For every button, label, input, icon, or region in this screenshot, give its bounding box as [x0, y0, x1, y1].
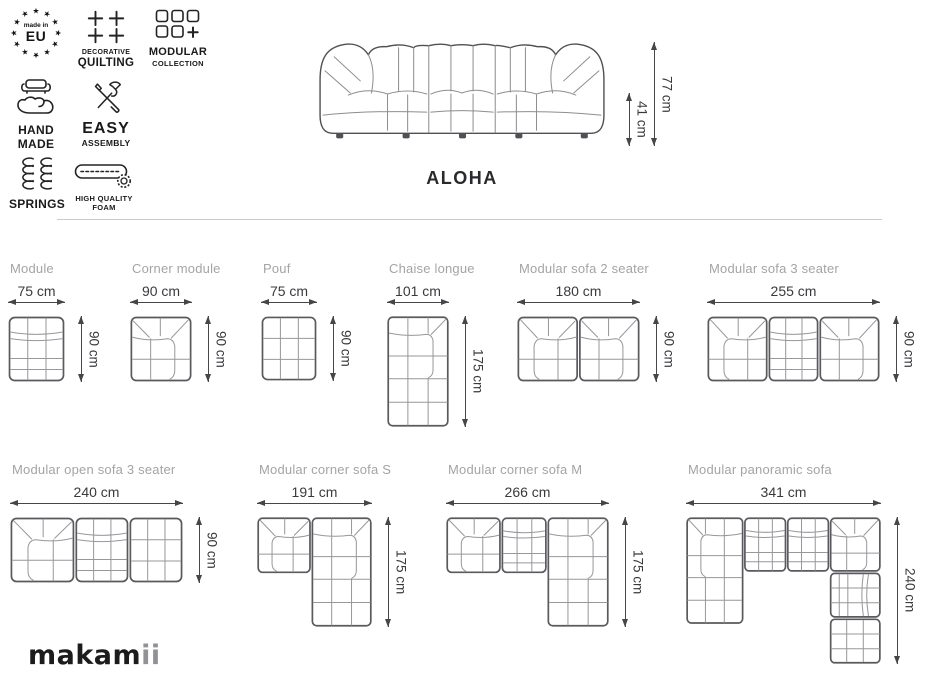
module-label: Modular open sofa 3 seater	[12, 463, 175, 476]
badge-label: FOAM	[92, 203, 115, 212]
seat-height-value: 41 cm	[635, 101, 649, 138]
spec-sofa-2-seater: Modular sofa 2 seater 180 cm 90 cm	[517, 262, 676, 382]
depth-arrow	[81, 316, 82, 382]
badge-made-in-eu: ★★ ★★ ★★ ★★ ★★ ★★ made in EU	[7, 5, 65, 61]
springs-icon	[17, 155, 57, 193]
spec-corner-module: Corner module 90 cm 90 cm	[130, 262, 228, 382]
depth-value: 90 cm	[87, 331, 101, 368]
total-height-dimension: 77 cm	[654, 42, 674, 146]
seat-height-dimension: 41 cm	[629, 93, 649, 146]
badge-label: SPRINGS	[9, 197, 65, 211]
module-label: Corner module	[132, 262, 221, 275]
corner-sofa-m-top-view	[446, 517, 609, 627]
badge-high-quality-foam: HIGH QUALITY FOAM	[70, 162, 138, 212]
depth-arrow	[199, 517, 200, 583]
width-value: 75 cm	[17, 284, 55, 298]
badge-label: HIGH QUALITY	[75, 194, 132, 203]
depth-arrow	[208, 316, 209, 382]
width-arrow	[10, 503, 183, 504]
badge-label: MODULAR	[149, 46, 207, 59]
module-label: Pouf	[263, 262, 291, 275]
badge-label: ASSEMBLY	[82, 138, 131, 148]
badge-label: COLLECTION	[152, 59, 204, 68]
pouf-top-view	[261, 316, 317, 381]
depth-value: 175 cm	[471, 349, 485, 393]
width-arrow	[261, 302, 317, 303]
badge-springs: SPRINGS	[14, 155, 60, 211]
badge-modular-collection: MODULAR COLLECTION	[150, 9, 206, 68]
eu-text: EU	[26, 29, 46, 44]
width-arrow	[686, 503, 881, 504]
width-value: 180 cm	[556, 284, 602, 298]
hand-sofa-icon	[14, 78, 58, 118]
eu-stars-icon: ★★ ★★ ★★ ★★ ★★ ★★ made in EU	[8, 5, 64, 61]
badge-label: MADE	[18, 137, 55, 151]
depth-arrow	[625, 517, 626, 627]
width-arrow	[446, 503, 609, 504]
brand-logo-main: makam	[28, 640, 141, 671]
depth-arrow	[333, 316, 334, 381]
spec-module: Module 75 cm 90 cm	[8, 262, 101, 382]
depth-arrow	[388, 517, 389, 627]
spec-panoramic-sofa: Modular panoramic sofa 341 cm 240 cm	[686, 463, 917, 664]
tools-icon	[87, 77, 125, 115]
width-arrow	[387, 302, 449, 303]
depth-value: 175 cm	[394, 550, 408, 594]
depth-value: 90 cm	[214, 331, 228, 368]
module-label: Chaise longue	[389, 262, 475, 275]
depth-value: 90 cm	[205, 532, 219, 569]
width-value: 341 cm	[761, 485, 807, 499]
depth-value: 90 cm	[662, 331, 676, 368]
total-height-value: 77 cm	[660, 76, 674, 113]
product-name: ALOHA	[310, 168, 614, 189]
width-arrow	[130, 302, 192, 303]
module-top-view	[8, 316, 65, 382]
corner-module-top-view	[130, 316, 192, 382]
module-label: Modular panoramic sofa	[688, 463, 832, 476]
sofa-feet	[336, 133, 588, 138]
badge-decorative-quilting: DECORATIVE QUILTING	[79, 9, 133, 71]
depth-arrow	[897, 517, 898, 664]
module-label: Modular sofa 2 seater	[519, 262, 649, 275]
badge-label: EASY	[82, 119, 130, 138]
badge-hand-made: HAND MADE	[11, 78, 61, 152]
sofa-front-view	[310, 30, 614, 150]
panoramic-sofa-top-view	[686, 517, 881, 664]
depth-arrow	[656, 316, 657, 382]
module-label: Modular sofa 3 seater	[709, 262, 839, 275]
badge-label: DECORATIVE	[82, 49, 130, 57]
open-sofa-3-seater-top-view	[10, 517, 183, 583]
section-divider	[57, 219, 882, 220]
quilting-icon	[84, 9, 128, 45]
sofa-2-seater-top-view	[517, 316, 640, 382]
module-label: Modular corner sofa M	[448, 463, 582, 476]
spec-corner-sofa-m: Modular corner sofa M 266 cm 175 cm	[446, 463, 645, 627]
badge-easy-assembly: EASY ASSEMBLY	[80, 77, 132, 148]
module-label: Module	[10, 262, 54, 275]
width-arrow	[257, 503, 372, 504]
brand-logo: makamii	[28, 642, 161, 669]
depth-arrow	[465, 316, 466, 427]
brand-logo-suffix: ii	[141, 640, 161, 671]
spec-sheet: ★★ ★★ ★★ ★★ ★★ ★★ made in EU DECORATIVE …	[0, 0, 930, 690]
badge-label: HAND	[18, 123, 54, 137]
depth-value: 175 cm	[631, 550, 645, 594]
width-value: 255 cm	[771, 284, 817, 298]
depth-value: 240 cm	[903, 568, 917, 612]
corner-sofa-s-top-view	[257, 517, 372, 627]
width-value: 90 cm	[142, 284, 180, 298]
depth-arrow	[896, 316, 897, 382]
width-value: 240 cm	[74, 485, 120, 499]
spec-open-sofa-3-seater: Modular open sofa 3 seater 240 cm 90 cm	[10, 463, 219, 583]
module-label: Modular corner sofa S	[259, 463, 391, 476]
width-value: 266 cm	[505, 485, 551, 499]
spec-pouf: Pouf 75 cm 90 cm	[261, 262, 353, 381]
width-value: 75 cm	[270, 284, 308, 298]
total-height-arrow	[654, 42, 655, 146]
spec-sofa-3-seater: Modular sofa 3 seater 255 cm 90 cm	[707, 262, 916, 382]
modules-grid-icon	[155, 9, 201, 41]
depth-value: 90 cm	[902, 331, 916, 368]
width-value: 101 cm	[395, 284, 441, 298]
badge-label: QUILTING	[78, 57, 135, 71]
width-arrow	[707, 302, 880, 303]
foam-icon	[74, 162, 134, 190]
spec-chaise-longue: Chaise longue 101 cm 175 cm	[387, 262, 485, 427]
spec-corner-sofa-s: Modular corner sofa S 191 cm 175 cm	[257, 463, 408, 627]
sofa-3-seater-top-view	[707, 316, 880, 382]
width-value: 191 cm	[292, 485, 338, 499]
chaise-top-view	[387, 316, 449, 427]
seat-height-arrow	[629, 93, 630, 146]
width-arrow	[517, 302, 640, 303]
width-arrow	[8, 302, 65, 303]
depth-value: 90 cm	[339, 330, 353, 367]
